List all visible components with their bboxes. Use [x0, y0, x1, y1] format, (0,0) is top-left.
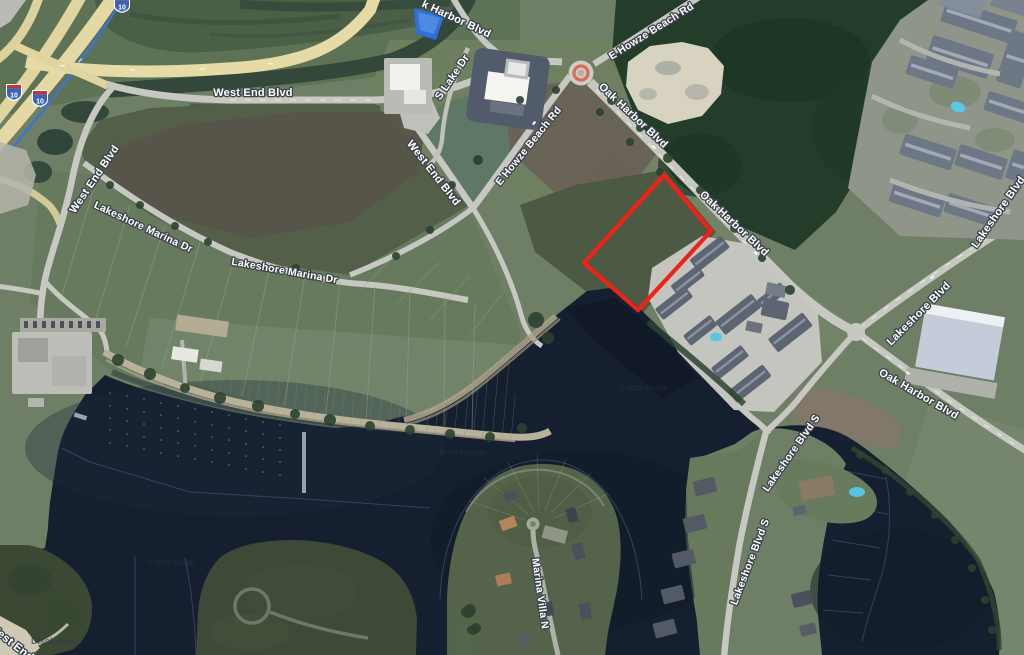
svg-text:© 2019 Google: © 2019 Google: [440, 449, 487, 457]
svg-text:© 2019: © 2019: [840, 434, 863, 442]
svg-text:Disclaimer: Disclaimer: [31, 636, 77, 646]
svg-text:10: 10: [118, 4, 126, 11]
svg-text:© 2019 Google: © 2019 Google: [148, 559, 195, 567]
svg-text:10: 10: [10, 92, 18, 99]
svg-text:© 2019 Google: © 2019 Google: [620, 384, 667, 392]
svg-text:West End Blvd: West End Blvd: [213, 87, 292, 99]
svg-text:10: 10: [36, 98, 44, 105]
